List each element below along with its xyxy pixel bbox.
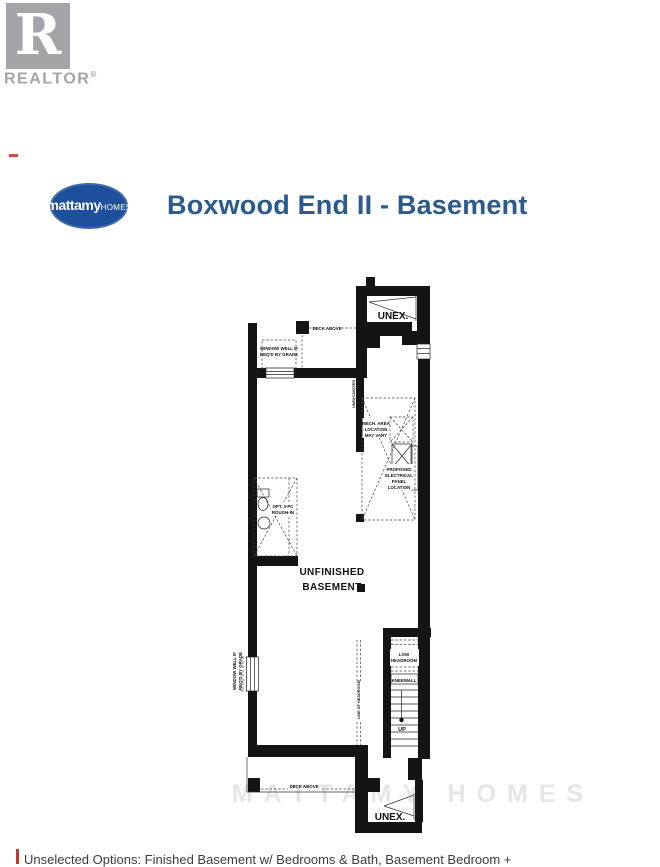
- electrical-label-line3: PANEL: [392, 479, 407, 484]
- electrical-label-line2: ELECTRICAL: [385, 473, 413, 478]
- low-headroom-label-line2: HEADROOM: [391, 658, 417, 663]
- opt-bath-label-line2: ROUGH-IN: [272, 510, 294, 515]
- electrical-label-line4: LOCATION: [388, 485, 411, 490]
- footer-disclaimer: Unselected Options: Finished Basement w/…: [24, 852, 511, 867]
- line-of-headroom-label: LINE OF HEADROOM: [357, 680, 361, 719]
- window-well-side-label-line2: REQ'D BY GRADE: [238, 652, 243, 690]
- mech-area-label-line2: LOCATION: [365, 427, 388, 432]
- window-well-side-label-line1: WINDOW WELL IF: [232, 652, 237, 690]
- label-backgrounds: [271, 418, 419, 683]
- deck-above-label-bottom: DECK ABOVE: [289, 784, 318, 789]
- up-label: UP: [398, 727, 406, 733]
- mech-area-label-line3: MAY VARY: [365, 433, 387, 438]
- deck-above-label-top: DECK ABOVE: [312, 326, 341, 331]
- mech-area-label-line1: MECH. AREA: [362, 421, 390, 426]
- kneewall-label: KNEEWALL: [392, 678, 417, 683]
- walls: [248, 277, 431, 833]
- unex-label-top: UNEX.: [378, 311, 409, 322]
- unex-label-bottom: UNEX.: [375, 812, 406, 823]
- unfinished-basement-label-line2: BASEMENT: [302, 582, 361, 593]
- electrical-label-line1: PROPOSED: [387, 467, 412, 472]
- low-headroom-label-line1: LOW: [399, 652, 410, 657]
- opt-bath-label-line1: OPT. 3-PC: [273, 504, 295, 509]
- basement-floorplan: UNEX. DECK ABOVE WINDOW WELL IF REQ'D BY…: [0, 0, 660, 864]
- windows: [247, 344, 431, 691]
- window-well-label-line2: REQ'D BY GRADE: [260, 352, 298, 357]
- unfinished-basement-label-line1: UNFINISHED: [299, 567, 364, 578]
- unexcavated-side-label: UNEXCAVATED: [352, 380, 356, 408]
- window-well-label-line1: WINDOW WELL IF: [260, 346, 298, 351]
